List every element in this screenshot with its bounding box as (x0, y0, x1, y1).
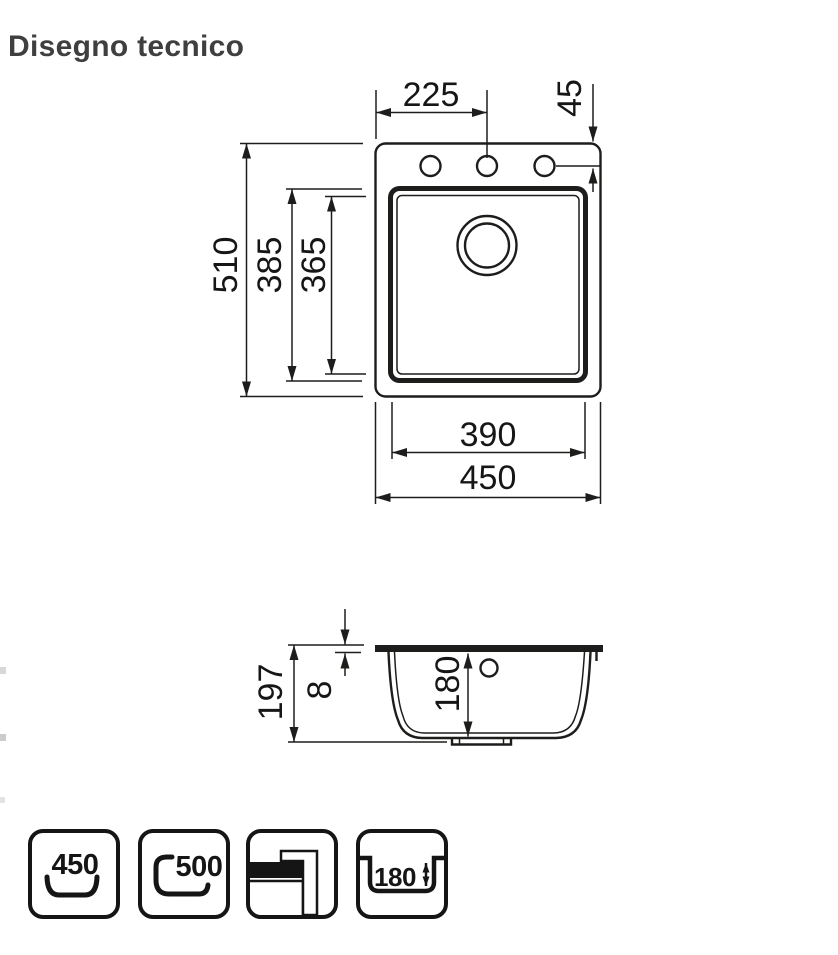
bowl-outline (391, 189, 586, 381)
badge-450-label: 450 (52, 849, 99, 881)
dim-total-height: 197 (252, 645, 447, 742)
top-view: 225 45 510 385 (207, 76, 601, 504)
dim-510-label: 510 (207, 237, 245, 294)
sink-technical-drawing: 225 45 510 385 (0, 0, 838, 800)
dim-225-label: 225 (403, 76, 460, 114)
flush-mount-icon (250, 833, 334, 915)
bowl-section-inner (395, 652, 585, 733)
tap-hole-left (421, 156, 441, 176)
side-view: 197 8 180 (252, 609, 603, 745)
min-base-unit-depth-badge: 500 (138, 829, 230, 919)
dim-tap-hole-offset-y: 45 (551, 79, 600, 192)
sink-outline (376, 144, 601, 397)
technical-drawing-page: Disegno tecnico 225 (0, 0, 838, 955)
dim-tap-hole-offset-x: 225 (376, 76, 487, 158)
badge-500-label: 500 (176, 851, 223, 883)
dim-365-label: 365 (295, 237, 333, 294)
dim-rim-height: 8 (301, 609, 361, 699)
dim-bowl-width: 390 (392, 402, 585, 459)
installation-type-badge (246, 829, 338, 919)
bowl-section-outer (389, 652, 591, 738)
tap-hole-center (477, 156, 497, 176)
dim-390-label: 390 (460, 416, 517, 454)
bowl-depth-badge: 180 (356, 829, 448, 919)
dim-45-label: 45 (551, 79, 589, 117)
dim-8-label: 8 (301, 681, 339, 700)
dim-197-label: 197 (252, 664, 290, 721)
dim-bowl-inner-depth: 365 (295, 197, 366, 375)
rim-section (375, 645, 603, 652)
section-hole-mark (481, 660, 498, 677)
badge-180-label: 180 (374, 862, 416, 892)
min-base-unit-width-badge: 450 (28, 829, 120, 919)
drain-circle-outer (458, 216, 517, 275)
dim-385-label: 385 (251, 237, 289, 294)
drain-circle-inner (465, 224, 509, 268)
dim-450-label: 450 (460, 459, 517, 497)
dim-bowl-depth: 180 (429, 654, 498, 737)
bowl-inner-line (397, 196, 579, 375)
tap-hole-right (535, 156, 555, 176)
dim-180-label: 180 (429, 656, 467, 713)
